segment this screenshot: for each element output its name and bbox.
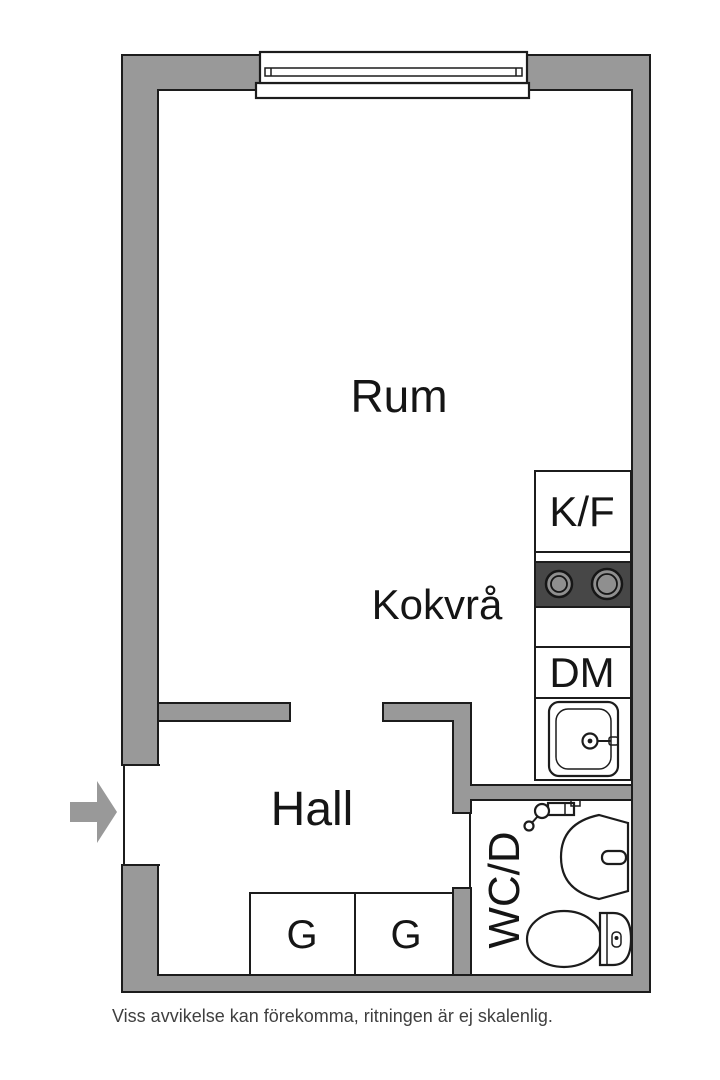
entrance-opening: [119, 765, 161, 865]
kitchen-counter-box: [535, 607, 631, 647]
wc-door-opening: [451, 813, 473, 888]
dishwasher-label: DM: [549, 652, 614, 694]
room-label-wcd: WC/D: [483, 831, 527, 948]
room-label-kokvra: Kokvrå: [372, 584, 503, 626]
room-label-hall: Hall: [271, 786, 354, 834]
washbasin-icon: [561, 815, 628, 899]
kitchen-filler-box: [535, 552, 631, 562]
floor-plan-drawing: [0, 0, 720, 1080]
toilet-icon: [527, 911, 631, 967]
sink-icon: [535, 698, 631, 780]
partition-hall-left: [158, 703, 290, 721]
stove-icon: [535, 562, 631, 607]
disclaimer-text: Viss avvikelse kan förekomma, ritningen …: [112, 1006, 553, 1027]
floor-plan: Rum Kokvrå Hall WC/D K/F DM G G Viss avv…: [0, 0, 720, 1080]
window-icon: [256, 50, 529, 102]
partition-wc-lower: [453, 888, 471, 975]
entrance-arrow-icon: [70, 781, 117, 843]
fridge-freezer-label: K/F: [549, 491, 614, 533]
wardrobe-label-left: G: [286, 915, 317, 955]
room-label-rum: Rum: [350, 373, 447, 419]
shower-mixer-icon: [525, 800, 581, 831]
wardrobe-label-right: G: [390, 915, 421, 955]
